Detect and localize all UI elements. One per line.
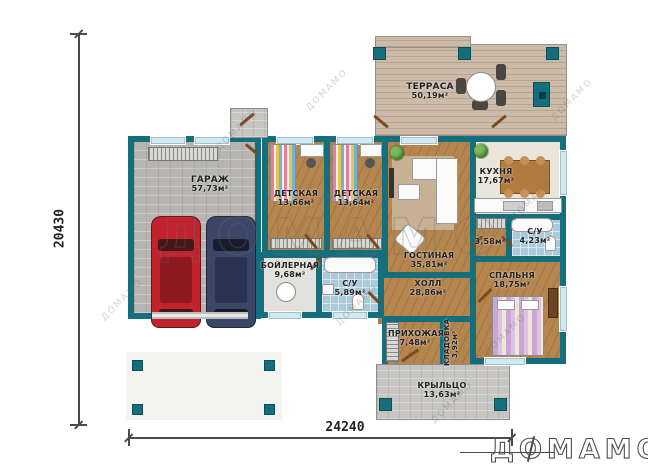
room-name: КУХНЯ <box>480 167 513 176</box>
label-boiler: БОЙЛЕРНАЯ 9,68м² <box>259 262 321 280</box>
dimension-value-bottom: 24240 <box>305 420 385 435</box>
boiler-tank-icon <box>276 282 296 302</box>
plant-icon <box>390 146 404 160</box>
label-hall: ХОЛЛ 28,86м² <box>398 280 458 298</box>
label-living: ГОСТИНАЯ 35,81м² <box>394 252 464 270</box>
desk-icon <box>300 144 324 157</box>
chair-icon <box>536 156 545 165</box>
room-area: 18,75м² <box>482 281 542 290</box>
dresser-icon <box>548 288 558 318</box>
room-name: ХОЛЛ <box>414 279 441 288</box>
label-terrace: ТЕРРАСА 50,19м² <box>395 82 465 101</box>
room-area: 9,68м² <box>259 271 321 280</box>
room-area: 3,58м² <box>468 238 512 247</box>
label-bath2: С/У 4,23м² <box>512 228 558 246</box>
brand-logo: ДОМАМО <box>490 434 648 465</box>
chair-icon <box>536 189 545 198</box>
label-entry: ПРИХОЖАЯ 7,48м² <box>388 330 442 348</box>
terrace-post-icon <box>458 47 471 60</box>
label-child2: ДЕТСКАЯ 13,64м² <box>328 190 384 208</box>
window-icon <box>332 311 368 320</box>
window-icon <box>194 136 230 145</box>
terrace-post-icon <box>373 47 386 60</box>
patio-post-icon <box>264 360 275 371</box>
plant-icon <box>474 144 488 158</box>
room-area: 7,48м² <box>388 339 442 348</box>
dimension-line-bottom <box>128 437 512 439</box>
label-kitchen: КУХНЯ 17,67м² <box>468 168 524 186</box>
label-bath1: С/У 5,89м² <box>326 280 374 298</box>
room-name: СПАЛЬНЯ <box>489 271 535 280</box>
window-icon <box>268 311 302 320</box>
window-icon <box>400 136 438 145</box>
chair-icon <box>496 64 506 80</box>
window-icon <box>484 357 526 366</box>
chair-icon <box>504 156 513 165</box>
chair-icon <box>504 189 513 198</box>
room-name: ГОСТИНАЯ <box>404 251 455 260</box>
tv-icon <box>389 168 394 198</box>
label-wardrobe: 3,58м² <box>468 238 512 247</box>
room-name: ДЕТСКАЯ <box>334 189 378 198</box>
terrace-upper-strip <box>375 36 471 48</box>
bed-icon <box>492 296 544 356</box>
floor-plan-canvas: ТЕРРАСА 50,19м² ГАРАЖ 57,73м² ДЕТСКАЯ 13… <box>0 0 648 470</box>
room-area: 13,63м² <box>410 391 474 400</box>
window-icon <box>559 150 568 196</box>
room-area: 5,89м² <box>326 289 374 298</box>
terrace-cabinet-icon <box>533 82 550 107</box>
room-area: 28,86м² <box>398 289 458 298</box>
dimension-value-left: 20430 <box>53 204 68 254</box>
desk-icon <box>360 144 382 157</box>
porch-post-icon <box>379 398 392 411</box>
room-name: ДЕТСКАЯ <box>274 189 318 198</box>
garage-steps <box>148 147 218 161</box>
window-icon <box>150 136 186 145</box>
side-stoop <box>230 108 268 138</box>
chair-icon <box>306 158 316 168</box>
patio-post-icon <box>264 404 275 415</box>
chair-icon <box>520 189 529 198</box>
dimension-line-left <box>78 33 80 425</box>
patio-post-icon <box>132 360 143 371</box>
room-name: КРЫЛЬЦО <box>417 381 466 390</box>
label-child1: ДЕТСКАЯ 13,66м² <box>266 190 326 208</box>
window-icon <box>559 286 568 332</box>
room-area: 13,66м² <box>266 199 326 208</box>
label-garage: ГАРАЖ 57,73м² <box>175 175 245 194</box>
patio-post-icon <box>132 404 143 415</box>
room-name: БОЙЛЕРНАЯ <box>261 261 319 270</box>
room-area: 13,64м² <box>328 199 384 208</box>
chair-icon <box>496 90 506 106</box>
label-porch: КРЫЛЬЦО 13,63м² <box>410 382 474 400</box>
round-table-icon <box>466 72 496 102</box>
label-bedroom: СПАЛЬНЯ 18,75м² <box>482 272 542 290</box>
room-area: 50,19м² <box>395 92 465 101</box>
label-storage: КЛАДОВКА 3,92м² <box>444 322 472 366</box>
room-name: С/У <box>342 279 358 288</box>
room-name: ПРИХОЖАЯ <box>388 329 444 338</box>
watermark-text: ДОМАМО <box>305 67 351 113</box>
chair-icon <box>365 158 375 168</box>
room-name: КЛАДОВКА <box>443 319 451 366</box>
room-area: 17,67м² <box>468 177 524 186</box>
room-area: 57,73м² <box>175 185 245 194</box>
sofa-icon <box>436 158 458 224</box>
kitchen-counter <box>474 198 562 213</box>
room-area: 4,23м² <box>512 237 558 246</box>
porch-post-icon <box>494 398 507 411</box>
bathtub-icon <box>324 257 376 273</box>
coffee-table-icon <box>398 184 420 200</box>
front-patio <box>126 352 282 420</box>
garage-door <box>152 312 248 319</box>
chair-icon <box>520 156 529 165</box>
room-area: 3,92м² <box>452 322 460 366</box>
terrace-post-icon <box>546 47 559 60</box>
room-area: 35,81м² <box>394 261 464 270</box>
room-name: С/У <box>527 227 543 236</box>
wardrobe-shelf-icon <box>476 218 506 229</box>
